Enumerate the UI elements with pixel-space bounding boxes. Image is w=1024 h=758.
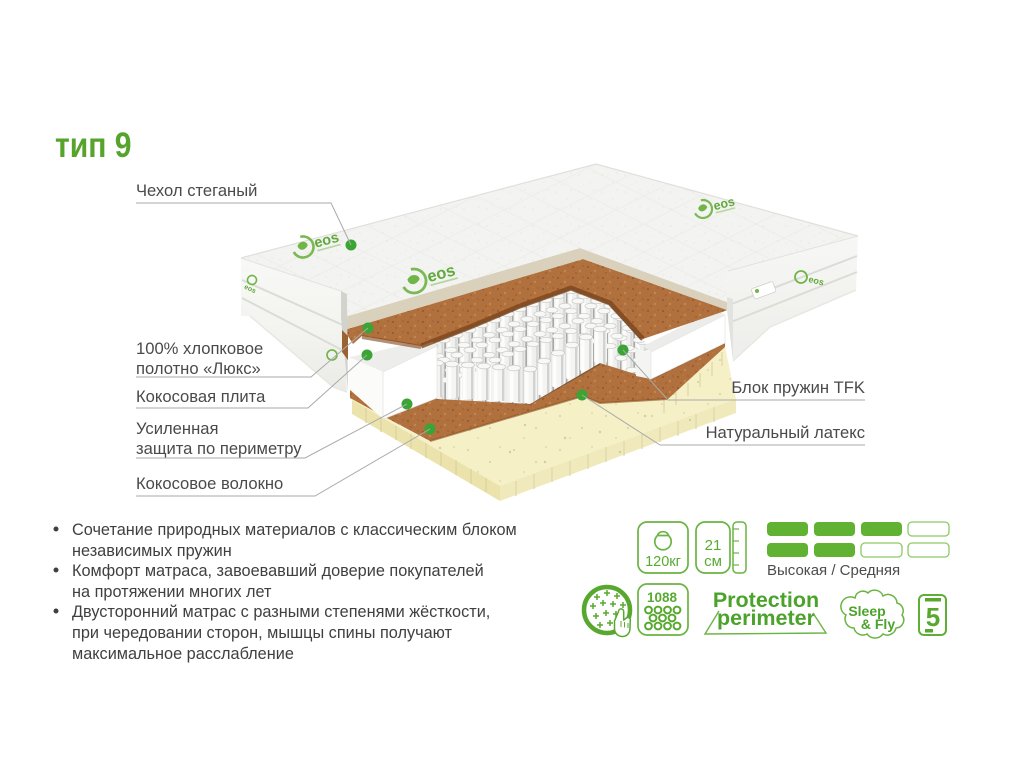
svg-text:независимых пружин: независимых пружин	[72, 542, 232, 560]
svg-text:5: 5	[926, 602, 940, 632]
svg-text:на протяжении многих лет: на протяжении многих лет	[72, 583, 272, 601]
svg-text:perimeter: perimeter	[717, 606, 816, 630]
svg-text:Двусторонний матрас с разными: Двусторонний матрас с разными степенями …	[72, 603, 490, 621]
svg-text:Сочетание природных материалов: Сочетание природных материалов с классич…	[72, 521, 517, 539]
svg-text:тип 9: тип 9	[55, 125, 131, 165]
svg-text:Чехол стеганый: Чехол стеганый	[136, 181, 257, 200]
svg-text:см: см	[704, 553, 722, 570]
svg-text:Кокосовое волокно: Кокосовое волокно	[136, 474, 283, 493]
svg-text:Кокосовая плита: Кокосовая плита	[136, 387, 266, 406]
svg-text:Комфорт матраса, завоевавший д: Комфорт матраса, завоевавший доверие пок…	[72, 562, 484, 580]
svg-text:120кг: 120кг	[645, 554, 681, 570]
svg-text:Натуральный латекс: Натуральный латекс	[706, 423, 865, 442]
svg-text:1088: 1088	[647, 590, 678, 605]
svg-text:Блок пружин TFK: Блок пружин TFK	[731, 378, 865, 397]
svg-text:максимальное расслабление: максимальное расслабление	[72, 645, 294, 663]
svg-text:защита по периметру: защита по периметру	[136, 439, 302, 458]
svg-text:Усиленная: Усиленная	[136, 419, 218, 438]
svg-text:при чередовании сторон, мышцы: при чередовании сторон, мышцы спины полу…	[72, 624, 452, 642]
svg-text:21: 21	[705, 537, 722, 554]
svg-text:Высокая / Средняя: Высокая / Средняя	[767, 562, 900, 579]
svg-text:100% хлопковое: 100% хлопковое	[136, 339, 263, 358]
svg-text:& Fly: & Fly	[861, 616, 895, 632]
svg-text:полотно «Люкс»: полотно «Люкс»	[136, 359, 261, 378]
